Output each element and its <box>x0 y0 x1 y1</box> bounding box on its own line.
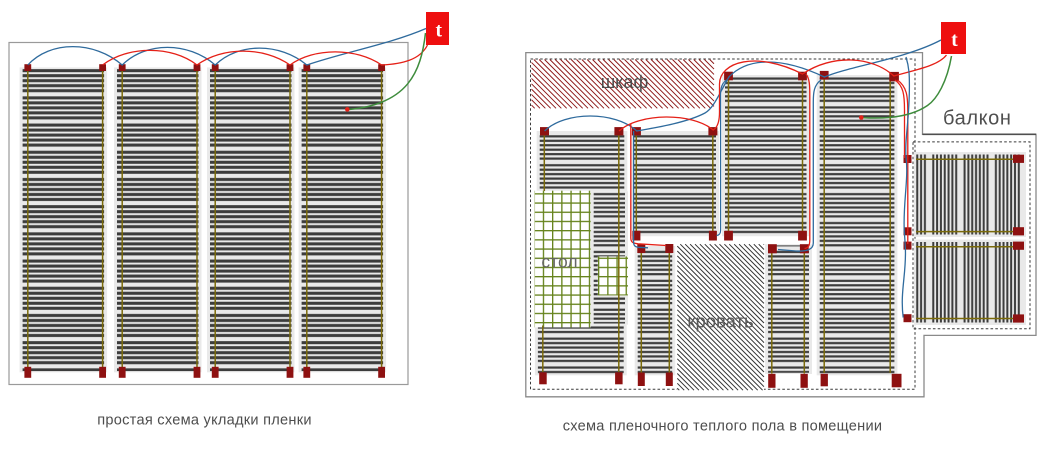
svg-text:t: t <box>951 30 958 51</box>
svg-text:стол: стол <box>541 252 577 272</box>
svg-text:t: t <box>435 20 442 41</box>
svg-text:балкон: балкон <box>943 108 1012 130</box>
svg-text:простая схема укладки пленки: простая схема укладки пленки <box>97 413 312 429</box>
svg-text:схема пленочного теплого пола: схема пленочного теплого пола в помещени… <box>563 419 883 435</box>
svg-text:шкаф: шкаф <box>601 72 649 92</box>
svg-text:кровать: кровать <box>687 311 753 332</box>
